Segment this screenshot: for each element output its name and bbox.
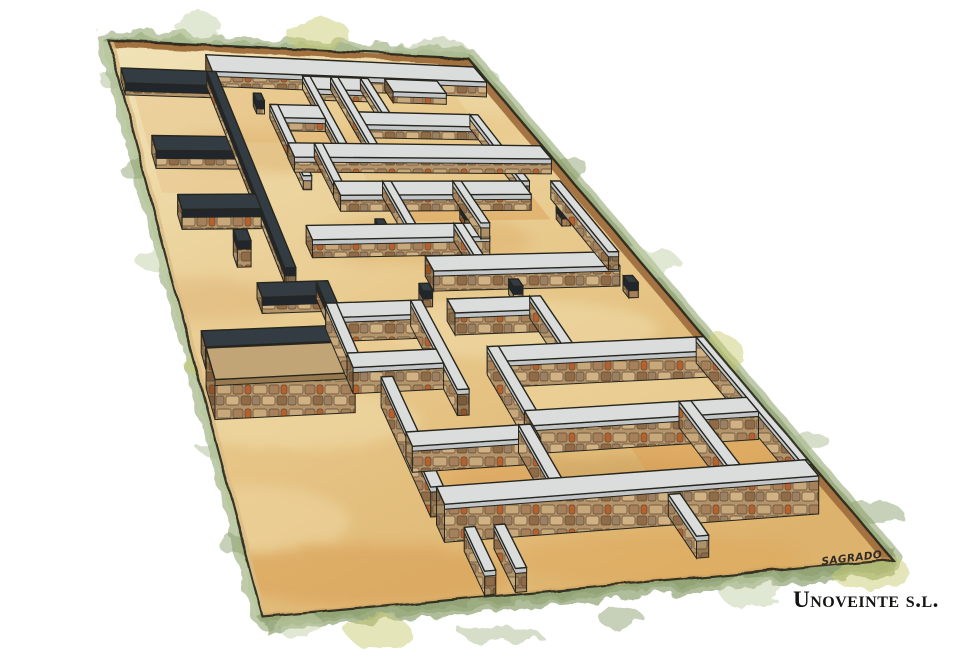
dark-wall-mid <box>152 136 239 170</box>
site-illustration: SAGRADO Unoveinte s.l. <box>0 0 980 656</box>
pillar-1 <box>253 93 264 114</box>
dark-wall-south <box>178 194 262 229</box>
illustration-canvas: SAGRADO Unoveinte s.l. <box>0 0 980 656</box>
grid-a-cross-4 <box>334 181 532 211</box>
dark-wall-north <box>121 68 220 98</box>
vegetation-clump <box>349 615 411 651</box>
vegetation-clump <box>460 625 540 643</box>
rubble-bastion <box>206 342 355 420</box>
vegetation-clump <box>598 605 642 629</box>
grid-a-north-wall-e <box>385 79 447 104</box>
vegetation-clump <box>178 13 222 43</box>
studio-credit-label: Unoveinte s.l. <box>793 587 939 612</box>
vegetation-clump <box>719 577 781 607</box>
watercolor-wash <box>150 486 350 554</box>
house-b-north-e <box>447 296 539 335</box>
pillar-5 <box>233 229 251 267</box>
dark-corner-north <box>257 281 322 313</box>
